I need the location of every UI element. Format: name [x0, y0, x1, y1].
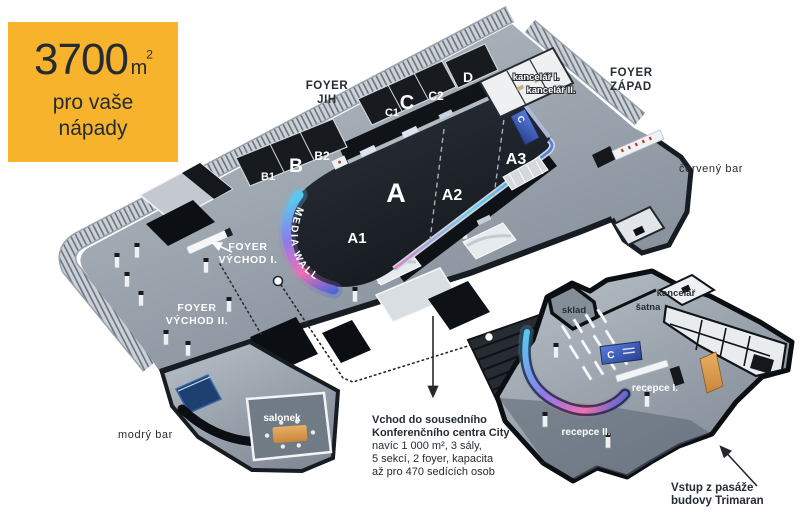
vstup-arrow	[721, 447, 757, 486]
modry-bar-label: modrý bar	[118, 429, 173, 441]
section-b2-label: B2	[314, 149, 330, 163]
sklad-label: sklad	[562, 305, 586, 316]
area-value: 3700	[34, 35, 128, 84]
cerveny-bar-label: červený bar	[679, 163, 743, 175]
vchod-line5: až pro 470 sedících osob	[372, 466, 495, 478]
hall-a1-label: A1	[347, 230, 366, 247]
foyer-vychod1-label-line2: VÝCHOD I.	[218, 253, 277, 266]
vstup-line2: budovy Trimaran	[671, 495, 764, 507]
kancelar-label: kancelář	[657, 288, 696, 299]
vchod-annotation: Vchod do sousedního Konferenčního centra…	[372, 414, 510, 478]
section-c2-label: C2	[428, 89, 444, 103]
vchod-line1: Vchod do sousedního	[372, 414, 487, 426]
foyer-jih-label-line2: JIH	[317, 94, 337, 106]
section-d-label: D	[463, 69, 473, 85]
foyer-zapad-label-line1: FOYER	[610, 67, 653, 79]
area-unit-exponent: 2	[146, 47, 152, 61]
hall-a2-label: A2	[442, 187, 463, 204]
vchod-line4: 5 sekcí, 2 foyer, kapacita	[372, 453, 494, 465]
salonek-label: salonek	[263, 413, 301, 424]
section-c-label: C	[400, 92, 414, 114]
area-value-line: 3700 m2	[8, 38, 178, 82]
recepce2-label: recepce II.	[562, 427, 611, 438]
reception-logo-letter: C	[607, 350, 616, 362]
satna-label: šatna	[636, 302, 662, 313]
foyer-vychod2-label-line2: VÝCHOD II.	[166, 314, 229, 327]
office-1-label: kancelář I.	[513, 72, 559, 83]
hall-a-label: A	[386, 178, 406, 208]
area-unit: m	[131, 57, 147, 79]
entrance-building: sklad	[497, 271, 792, 481]
salonek-room: salonek	[247, 393, 331, 460]
section-b-label: B	[289, 156, 303, 177]
foyer-vychod1-label-line1: FOYER	[228, 241, 267, 253]
vstup-line1: Vstup z pasáže	[671, 482, 753, 494]
foyer-jih-label-line1: FOYER	[306, 80, 349, 92]
section-c1-label: C1	[385, 107, 399, 119]
badge-subtitle-line2: nápady	[8, 116, 178, 142]
office-2-label: kancelář II.	[526, 85, 575, 96]
foyer-vychod2-label-line1: FOYER	[177, 302, 216, 314]
route-marker-hall	[274, 277, 283, 286]
salonek-table	[272, 425, 307, 443]
foyer-zapad-label-line2: ZÁPAD	[610, 80, 652, 93]
vchod-line3: navíc 1 000 m², 3 sály,	[372, 440, 482, 452]
recepce1-label: recepce I.	[632, 383, 678, 394]
south-wing: salonek	[162, 342, 338, 471]
area-badge: 3700 m2 pro vaše nápady	[8, 22, 178, 162]
vchod-line2: Konferenčního centra City	[372, 427, 510, 439]
vstup-annotation: Vstup z pasáže budovy Trimaran	[671, 482, 764, 507]
badge-subtitle: pro vaše nápady	[8, 90, 178, 141]
badge-subtitle-line1: pro vaše	[8, 90, 178, 116]
section-b1-label: B1	[261, 171, 275, 183]
route-marker-entrance	[485, 333, 494, 342]
floor-plan-page: 3700 m2 pro vaše nápady	[0, 0, 800, 523]
